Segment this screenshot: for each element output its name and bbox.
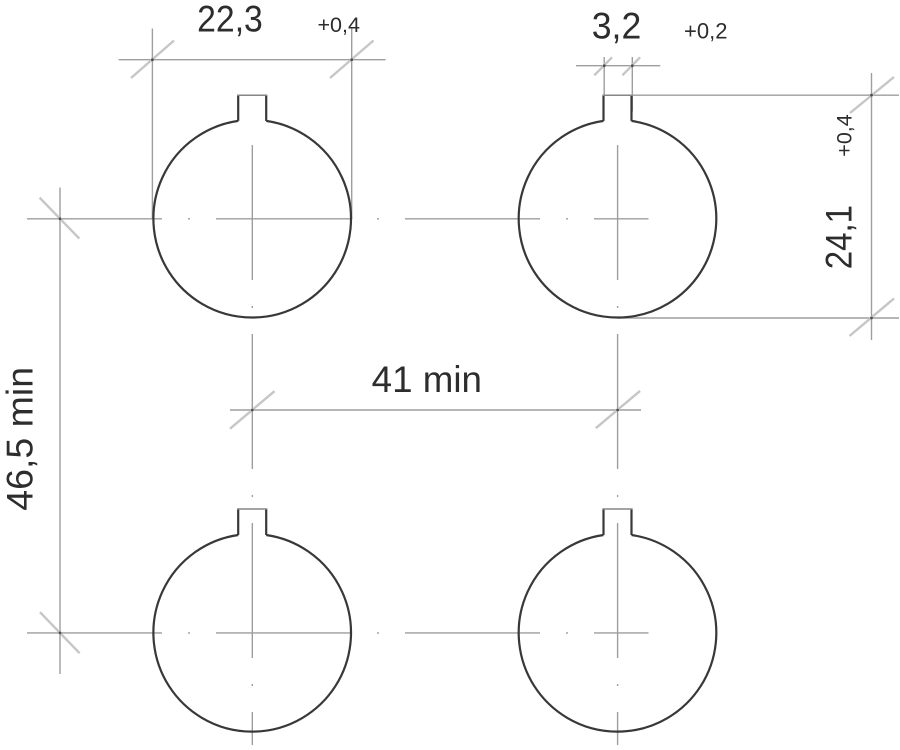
svg-text:46,5 min: 46,5 min <box>0 367 41 511</box>
svg-text:+0,4: +0,4 <box>318 13 360 37</box>
svg-text:24,1: 24,1 <box>819 205 860 269</box>
svg-text:41 min: 41 min <box>372 357 482 399</box>
svg-text:22,3: 22,3 <box>197 0 263 40</box>
svg-text:+0,2: +0,2 <box>684 19 727 44</box>
svg-text:3,2: 3,2 <box>592 5 642 47</box>
svg-text:+0,4: +0,4 <box>833 114 857 156</box>
